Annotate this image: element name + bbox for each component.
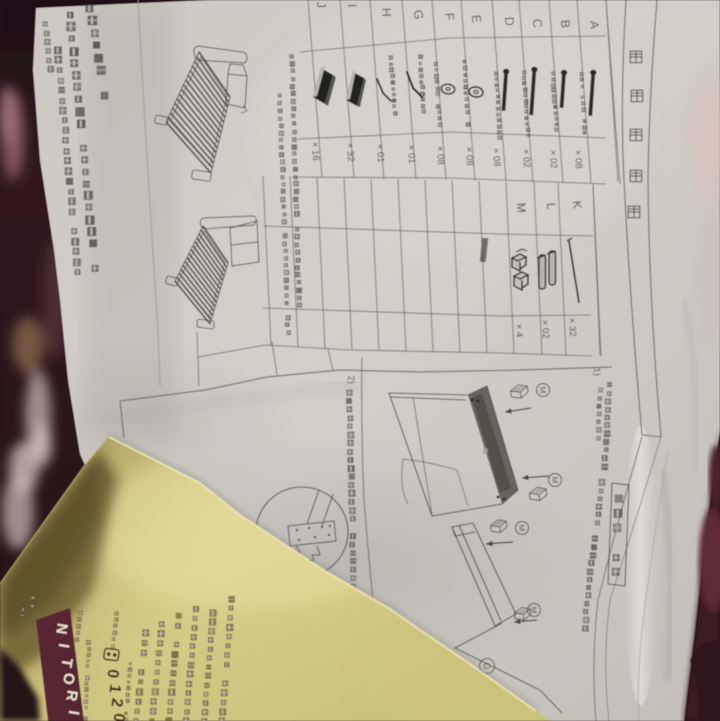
svg-text:× 4: × 4 <box>513 324 525 338</box>
svg-text:× 32: × 32 <box>566 318 578 337</box>
svg-text:M: M <box>529 606 538 613</box>
svg-text:× 01: × 01 <box>405 145 417 164</box>
svg-text:F: F <box>442 12 456 21</box>
svg-text:M: M <box>550 476 559 483</box>
svg-text:2): 2) <box>346 375 357 384</box>
svg-text:M: M <box>514 202 529 213</box>
svg-text:I: I <box>345 3 359 7</box>
svg-text:× 02: × 02 <box>547 150 559 169</box>
svg-text:× 08: × 08 <box>572 150 584 169</box>
svg-text:M: M <box>538 386 547 393</box>
svg-text:E: E <box>469 14 483 23</box>
svg-text:A: A <box>587 20 601 30</box>
svg-text:× 01: × 01 <box>374 144 386 163</box>
svg-text:× 08: × 08 <box>434 146 446 165</box>
svg-text:J: J <box>314 1 328 8</box>
svg-text:L: L <box>544 202 558 210</box>
svg-text:× 08: × 08 <box>463 147 475 166</box>
svg-text:G: G <box>411 9 425 19</box>
svg-text:× 16: × 16 <box>309 142 321 161</box>
svg-text:B: B <box>558 19 572 28</box>
svg-text:× 02: × 02 <box>520 149 532 168</box>
svg-text:× 32: × 32 <box>344 143 356 162</box>
svg-text:C: C <box>530 18 544 28</box>
svg-text:D: D <box>502 16 516 26</box>
svg-text:1): 1) <box>592 367 603 376</box>
svg-text:× 02: × 02 <box>539 320 551 339</box>
svg-text:H: H <box>379 7 393 17</box>
svg-text:0: 0 <box>109 712 127 721</box>
svg-text:× 08: × 08 <box>490 148 502 167</box>
svg-text:K: K <box>570 200 584 209</box>
svg-text:M: M <box>517 524 526 531</box>
